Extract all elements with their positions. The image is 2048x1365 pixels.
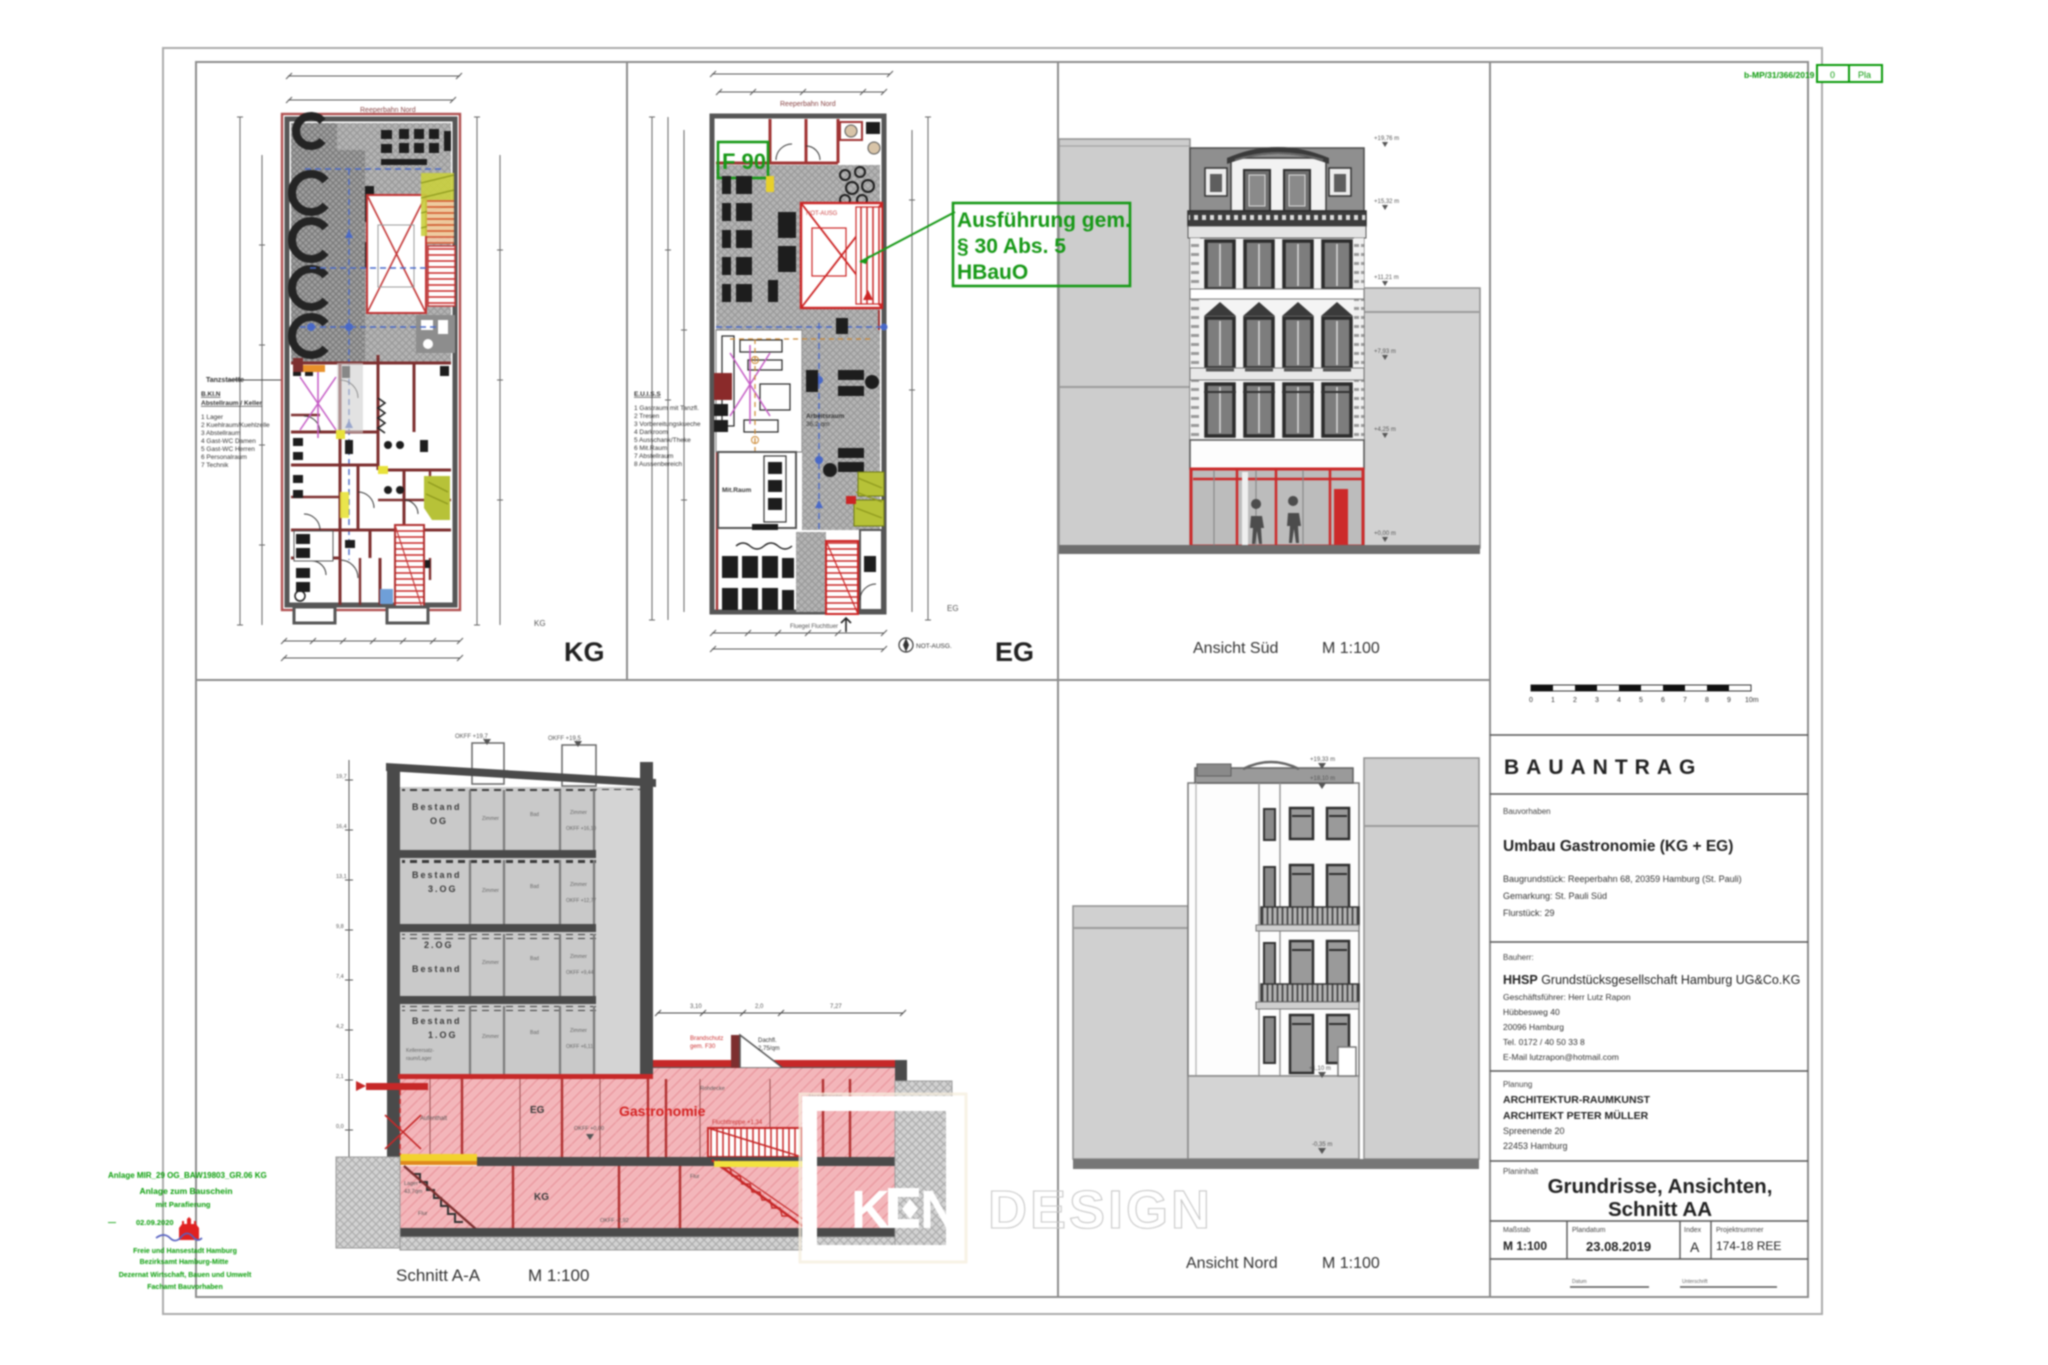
svg-text:E-Mail lutzrapon@hotmail.com: E-Mail lutzrapon@hotmail.com: [1503, 1052, 1619, 1062]
svg-text:4 Gast-WC Damen: 4 Gast-WC Damen: [201, 438, 256, 445]
svg-text:Flur: Flur: [690, 1174, 700, 1180]
svg-text:Lager: Lager: [404, 1181, 418, 1187]
svg-text:Bad: Bad: [530, 956, 539, 962]
svg-text:Bad: Bad: [530, 1030, 539, 1036]
svg-text:OKFF +6,11: OKFF +6,11: [566, 1044, 593, 1050]
svg-text:Fachamt Bauvorhaben: Fachamt Bauvorhaben: [147, 1284, 222, 1291]
svg-text:K: K: [851, 1180, 890, 1240]
svg-text:0: 0: [1830, 70, 1835, 80]
svg-text:EG: EG: [995, 637, 1034, 667]
svg-text:HHSP Grundstücksgesellschaft H: HHSP Grundstücksgesellschaft Hamburg UG&…: [1503, 973, 1800, 987]
svg-text:NOT-AUSG.: NOT-AUSG.: [916, 643, 952, 650]
svg-text:Rohdecke: Rohdecke: [700, 1086, 725, 1092]
svg-text:7: 7: [1683, 697, 1687, 704]
svg-text:Flur: Flur: [418, 1211, 428, 1217]
svg-text:A: A: [1690, 1239, 1700, 1255]
svg-text:3.OG: 3.OG: [428, 884, 458, 894]
svg-text:2: 2: [1573, 697, 1577, 704]
svg-text:Umbau Gastronomie (KG + EG): Umbau Gastronomie (KG + EG): [1503, 838, 1733, 855]
svg-text:174-18 REE: 174-18 REE: [1716, 1239, 1781, 1253]
svg-text:Dachfl.: Dachfl.: [758, 1038, 777, 1044]
svg-text:OKFF -2,92: OKFF -2,92: [600, 1218, 629, 1224]
svg-text:Anlage MIR_29 OG_BAW19803_GR.0: Anlage MIR_29 OG_BAW19803_GR.06 KG: [108, 1171, 267, 1180]
svg-text:10m: 10m: [1745, 697, 1759, 704]
svg-text:Planung: Planung: [1503, 1080, 1532, 1089]
svg-text:Mit.Raum: Mit.Raum: [722, 487, 751, 494]
svg-text:Datum: Datum: [1572, 1279, 1587, 1285]
svg-text:2.OG: 2.OG: [424, 940, 454, 950]
svg-text:Dezernat Wirtschaft, Bauen und: Dezernat Wirtschaft, Bauen und Umwelt: [119, 1272, 252, 1279]
svg-text:02.09.2020: 02.09.2020: [136, 1218, 174, 1227]
svg-text:Bad: Bad: [530, 884, 539, 890]
svg-text:Pla: Pla: [1858, 70, 1871, 80]
svg-text:Fluegel Fluchttuer: Fluegel Fluchttuer: [790, 624, 838, 630]
svg-text:b-MP/31/366/2019: b-MP/31/366/2019: [1744, 70, 1815, 80]
svg-text:EG: EG: [947, 604, 959, 613]
svg-text:N: N: [920, 1180, 959, 1240]
svg-text:3: 3: [1595, 697, 1599, 704]
svg-text:Bauherr:: Bauherr:: [1503, 953, 1534, 962]
svg-text:3 Abstellraum: 3 Abstellraum: [201, 430, 240, 437]
svg-text:Ausführung gem.: Ausführung gem.: [957, 209, 1131, 232]
svg-text:BAUANTRAG: BAUANTRAG: [1504, 756, 1702, 779]
svg-text:+4,25 m: +4,25 m: [1374, 427, 1396, 433]
svg-text:Aufenthalt: Aufenthalt: [420, 1116, 447, 1122]
svg-text:6 Mit.Raum: 6 Mit.Raum: [634, 445, 667, 452]
svg-text:F 90: F 90: [722, 149, 766, 174]
svg-text:M 1:100: M 1:100: [1322, 640, 1380, 657]
svg-text:+15,32 m: +15,32 m: [1374, 199, 1399, 205]
svg-text:Bad: Bad: [530, 812, 539, 818]
svg-text:23.08.2019: 23.08.2019: [1586, 1239, 1651, 1254]
svg-text:9,8: 9,8: [336, 924, 344, 930]
svg-text:3 Vorbereitungskueche: 3 Vorbereitungskueche: [634, 421, 701, 428]
svg-text:+7,93 m: +7,93 m: [1374, 349, 1396, 355]
svg-text:1 Gastraum mit Tanzfl.: 1 Gastraum mit Tanzfl.: [634, 405, 699, 412]
svg-text:Zimmer: Zimmer: [570, 882, 587, 888]
svg-text:Bezirksamt Hamburg-Mitte: Bezirksamt Hamburg-Mitte: [140, 1259, 229, 1266]
svg-text:2,75/qm: 2,75/qm: [758, 1046, 780, 1052]
svg-text:Bestand: Bestand: [412, 1016, 462, 1026]
svg-text:Zimmer: Zimmer: [482, 1034, 499, 1040]
svg-text:Anlage zum Bauschein: Anlage zum Bauschein: [139, 1186, 232, 1196]
svg-text:19,7: 19,7: [336, 774, 347, 780]
svg-text:B.KI.N: B.KI.N: [201, 391, 221, 398]
svg-text:7 Abstellraum: 7 Abstellraum: [634, 453, 673, 460]
svg-text:Hübbesweg 40: Hübbesweg 40: [1503, 1007, 1560, 1017]
svg-text:3,10: 3,10: [690, 1004, 702, 1010]
svg-text:22453 Hamburg: 22453 Hamburg: [1503, 1141, 1568, 1151]
svg-text:Unterschrift: Unterschrift: [1682, 1279, 1708, 1285]
svg-text:Abstellraum / Keller: Abstellraum / Keller: [201, 400, 263, 407]
svg-text:Schnitt A-A: Schnitt A-A: [396, 1266, 481, 1285]
svg-text:EG: EG: [530, 1105, 545, 1116]
svg-text:Reeperbahn Nord: Reeperbahn Nord: [780, 101, 836, 108]
svg-text:16,4: 16,4: [336, 824, 347, 830]
svg-text:4 Darkroom: 4 Darkroom: [634, 429, 668, 436]
svg-text:KG: KG: [534, 1192, 549, 1203]
svg-text:DESIGN: DESIGN: [988, 1180, 1213, 1240]
svg-text:Bestand: Bestand: [412, 870, 462, 880]
svg-text:6: 6: [1661, 697, 1665, 704]
svg-text:+19,33 m: +19,33 m: [1310, 757, 1335, 763]
svg-text:OKFF +0,00: OKFF +0,00: [574, 1126, 604, 1132]
svg-text:1 Lager: 1 Lager: [201, 414, 224, 421]
svg-text:Zimmer: Zimmer: [482, 888, 499, 894]
svg-text:Zimmer: Zimmer: [482, 960, 499, 966]
svg-text:5 Ausschank/Theke: 5 Ausschank/Theke: [634, 437, 691, 444]
svg-text:1.OG: 1.OG: [428, 1030, 458, 1040]
svg-text:20096 Hamburg: 20096 Hamburg: [1503, 1022, 1564, 1032]
svg-text:13,1: 13,1: [336, 874, 347, 880]
svg-text:0,0: 0,0: [336, 1124, 344, 1130]
svg-text:6 Personalraum: 6 Personalraum: [201, 454, 247, 461]
svg-text:Tel. 0172 / 40 50 33 8: Tel. 0172 / 40 50 33 8: [1503, 1037, 1585, 1047]
svg-text:0: 0: [1529, 697, 1533, 704]
svg-text:Projektnummer: Projektnummer: [1716, 1227, 1764, 1234]
svg-text:7 Technik: 7 Technik: [201, 462, 229, 469]
svg-text:HBauO: HBauO: [957, 261, 1028, 284]
svg-text:2 Kuehlraum/Kuehlzelle: 2 Kuehlraum/Kuehlzelle: [201, 422, 270, 429]
svg-text:5 Gast-WC Herren: 5 Gast-WC Herren: [201, 446, 255, 453]
svg-text:raum/Lager: raum/Lager: [406, 1056, 432, 1062]
svg-text:+18,10 m: +18,10 m: [1310, 776, 1335, 782]
svg-text:Bestand: Bestand: [412, 802, 462, 812]
svg-text:Planinhalt: Planinhalt: [1503, 1167, 1539, 1176]
svg-text:mit Parafierung: mit Parafierung: [155, 1200, 210, 1209]
svg-text:gem. F30: gem. F30: [690, 1044, 716, 1050]
svg-text:Bestand: Bestand: [412, 964, 462, 974]
svg-text:Zimmer: Zimmer: [570, 810, 587, 816]
svg-text:ARCHITEKT PETER MÜLLER: ARCHITEKT PETER MÜLLER: [1503, 1109, 1649, 1122]
svg-text:43,7qm: 43,7qm: [404, 1189, 423, 1195]
svg-text:7,27: 7,27: [830, 1004, 842, 1010]
svg-text:OKFF +9,44: OKFF +9,44: [566, 970, 594, 976]
svg-text:8: 8: [1705, 697, 1709, 704]
svg-text:4,2: 4,2: [336, 1024, 344, 1030]
svg-text:OKFF +12,77: OKFF +12,77: [566, 898, 596, 904]
svg-text:+11,21 m: +11,21 m: [1374, 275, 1399, 281]
svg-text:Ansicht Süd: Ansicht Süd: [1193, 640, 1278, 657]
svg-text:Arbeitsraum: Arbeitsraum: [806, 413, 845, 420]
svg-text:Kellerersatz-: Kellerersatz-: [406, 1048, 434, 1054]
svg-text:§ 30 Abs. 5: § 30 Abs. 5: [957, 235, 1066, 258]
svg-text:-0,35 m: -0,35 m: [1312, 1142, 1332, 1148]
svg-text:M 1:100: M 1:100: [1503, 1239, 1547, 1253]
svg-text:+1,10 m: +1,10 m: [1309, 1066, 1331, 1072]
svg-text:Spreenende 20: Spreenende 20: [1503, 1126, 1565, 1136]
svg-text:Gemarkung: St. Pauli Sü: Gemarkung: St. Pauli Süd: [1503, 891, 1607, 901]
svg-text:M 1:100: M 1:100: [1322, 1255, 1380, 1272]
svg-text:2,1: 2,1: [336, 1074, 344, 1080]
svg-text:M 1:100: M 1:100: [528, 1266, 589, 1285]
svg-text:Brandschutz: Brandschutz: [690, 1036, 723, 1042]
svg-text:E.U.I.S.S: E.U.I.S.S: [634, 391, 661, 398]
svg-text:Gastronomie: Gastronomie: [619, 1103, 706, 1119]
svg-text:4: 4: [1617, 697, 1621, 704]
svg-text:8 Aussenbereich: 8 Aussenbereich: [634, 461, 682, 468]
svg-text:1: 1: [1551, 697, 1555, 704]
svg-text:ARCHITEKTUR-RAUMKUNST: ARCHITEKTUR-RAUMKUNST: [1503, 1094, 1651, 1106]
svg-text:2 Tresen: 2 Tresen: [634, 413, 660, 420]
svg-text:Index: Index: [1684, 1227, 1702, 1234]
svg-text:+19,76 m: +19,76 m: [1374, 136, 1399, 142]
svg-text:7,4: 7,4: [336, 974, 344, 980]
svg-text:+0,00 m: +0,00 m: [1374, 531, 1396, 537]
svg-text:5: 5: [1639, 697, 1643, 704]
svg-text:2,0: 2,0: [755, 1004, 764, 1010]
svg-text:OKFF +16,10: OKFF +16,10: [566, 826, 596, 832]
svg-text:36,2 qm: 36,2 qm: [806, 421, 830, 428]
svg-text:Ansicht Nord: Ansicht Nord: [1186, 1255, 1278, 1272]
svg-text:NOT-AUSG: NOT-AUSG: [806, 211, 838, 217]
svg-text:Zimmer: Zimmer: [570, 1028, 587, 1034]
svg-text:Flurstück: 29: Flurstück: 29: [1503, 908, 1555, 918]
svg-text:OG: OG: [430, 816, 448, 826]
svg-text:Bauvorhaben: Bauvorhaben: [1503, 807, 1551, 816]
svg-text:Geschäftsführer: Herr Lutz Rap: Geschäftsführer: Herr Lutz Rapon: [1503, 992, 1631, 1002]
svg-text:Baugrundstück: Reeperbahn 68: Baugrundstück: Reeperbahn 68, 20359 Hamb…: [1503, 874, 1742, 884]
svg-text:KG: KG: [534, 619, 546, 628]
svg-text:Plandatum: Plandatum: [1572, 1227, 1606, 1234]
svg-text:Grundrisse, Ansichten,: Grundrisse, Ansichten,: [1548, 1175, 1773, 1198]
svg-text:—: —: [108, 1218, 116, 1227]
svg-text:Fluchttreppe +1,34: Fluchttreppe +1,34: [712, 1120, 763, 1126]
svg-text:Schnitt AA: Schnitt AA: [1608, 1198, 1712, 1221]
svg-text:Zimmer: Zimmer: [482, 816, 499, 822]
svg-text:9: 9: [1727, 697, 1731, 704]
svg-text:Maßstab: Maßstab: [1503, 1227, 1530, 1234]
svg-text:Freie und Hansestadt Hamburg: Freie und Hansestadt Hamburg: [133, 1248, 237, 1255]
svg-text:Zimmer: Zimmer: [570, 954, 587, 960]
svg-text:KG: KG: [564, 637, 605, 667]
